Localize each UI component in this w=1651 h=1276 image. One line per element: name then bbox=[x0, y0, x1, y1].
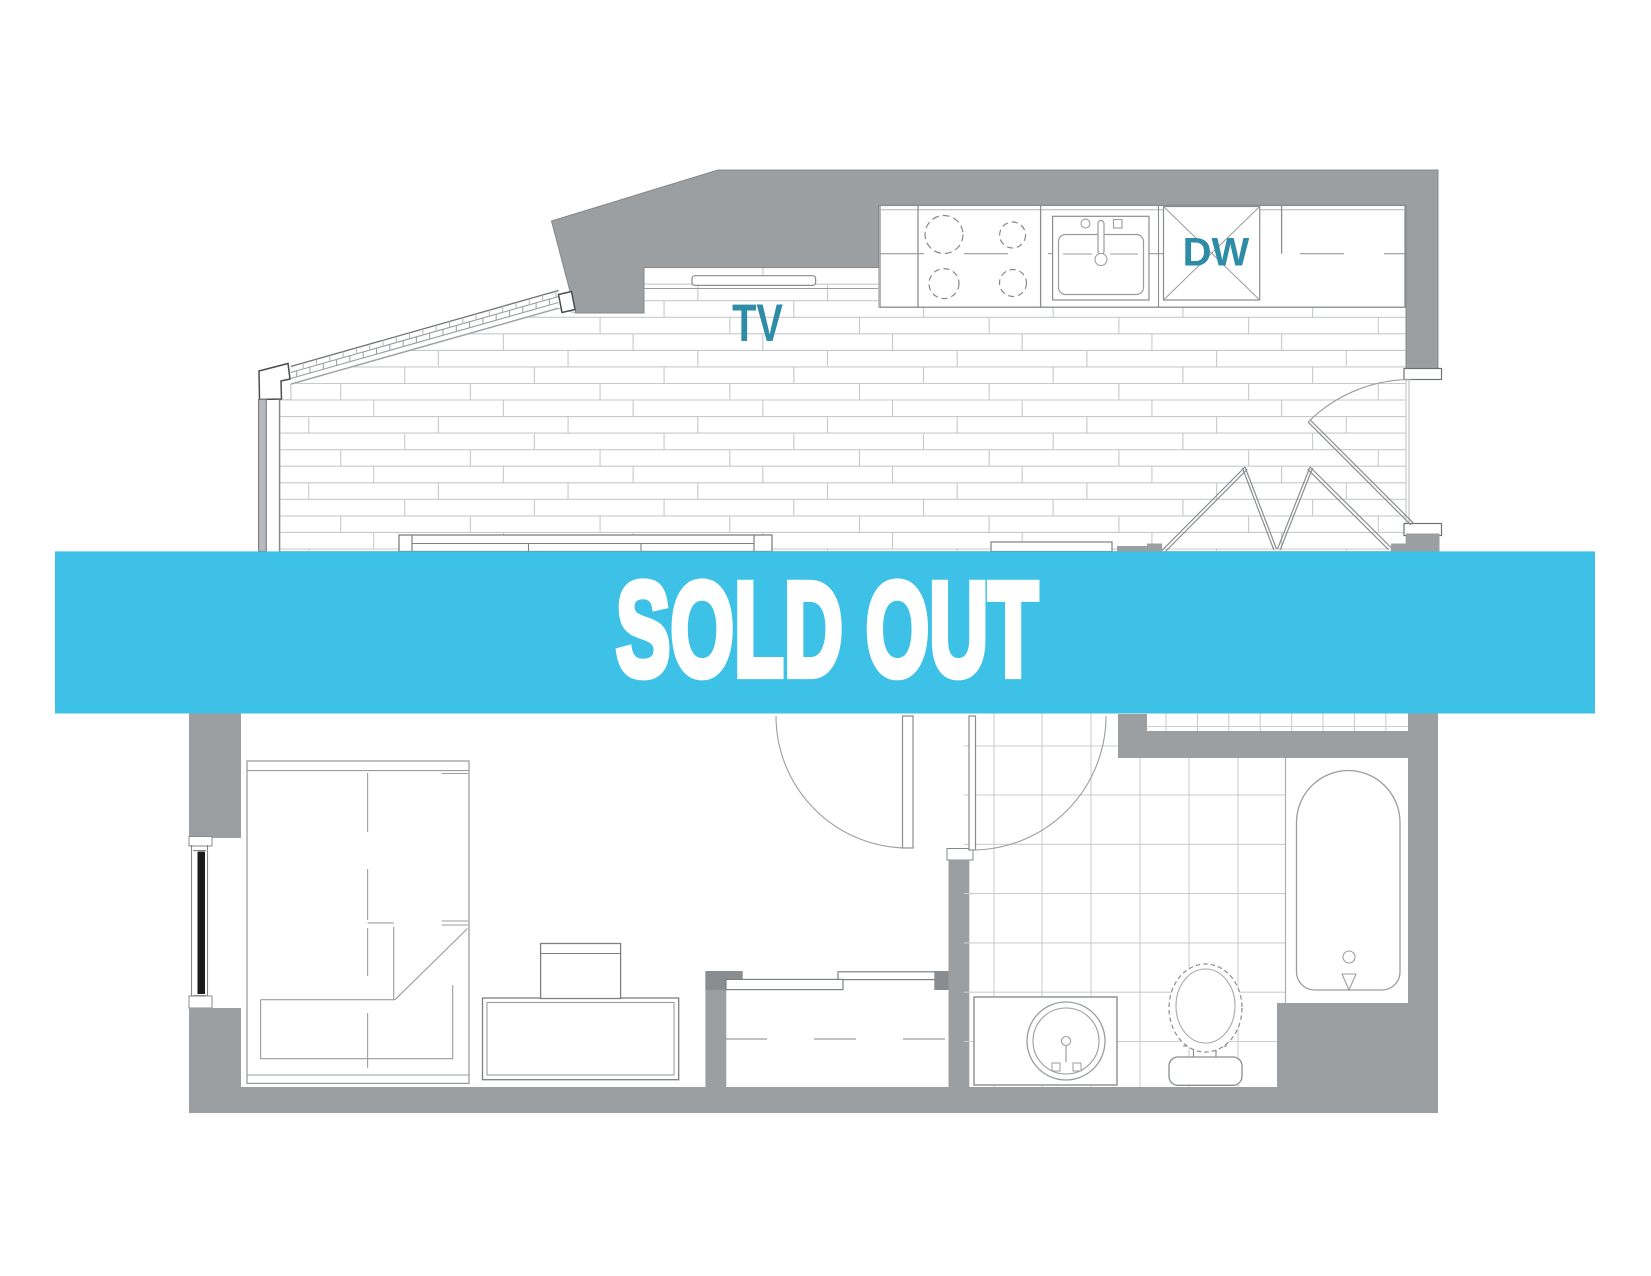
svg-text:DW: DW bbox=[1183, 231, 1250, 275]
svg-text:SOLD OUT: SOLD OUT bbox=[616, 555, 1038, 705]
svg-text:TV: TV bbox=[732, 293, 783, 352]
